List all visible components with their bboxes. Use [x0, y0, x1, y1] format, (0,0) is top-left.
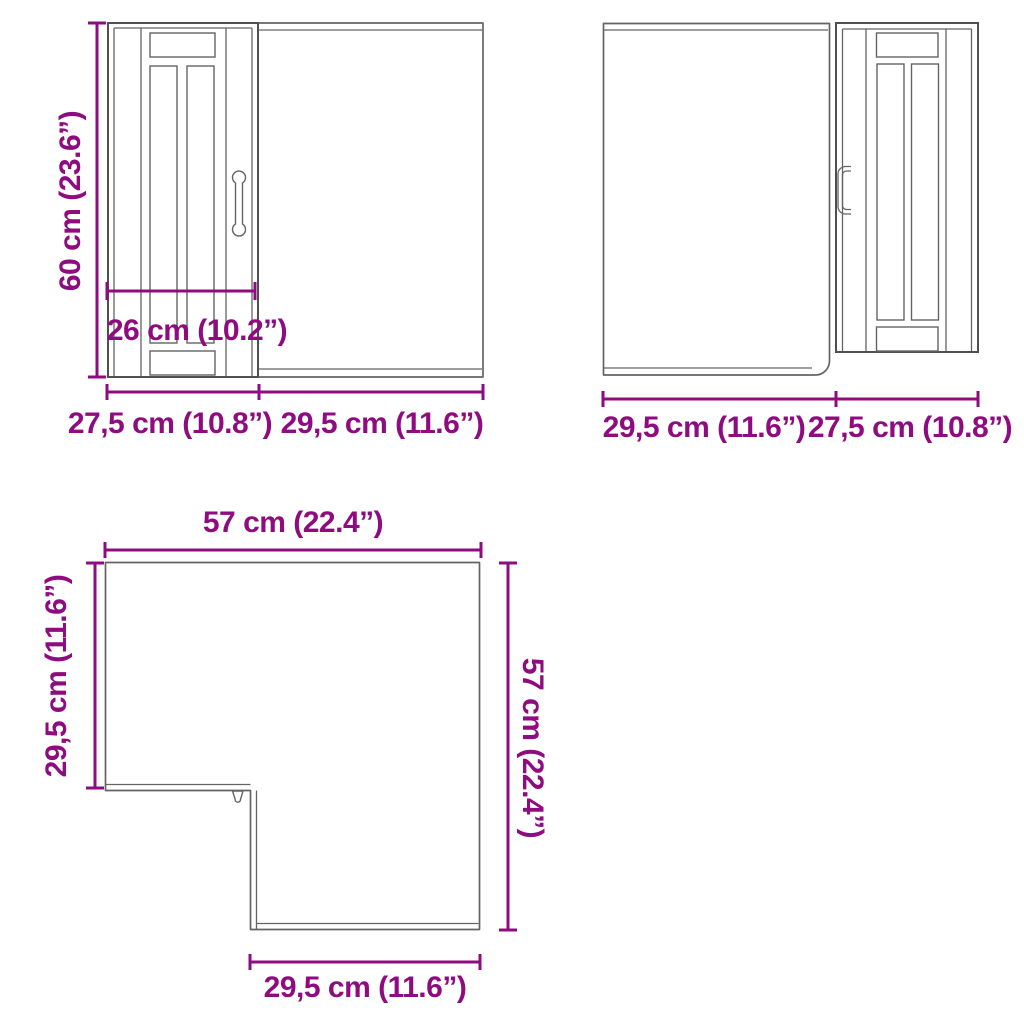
front-right-door-width-label: 27,5 cm (10.8”) — [808, 413, 1012, 443]
side-panel — [604, 24, 830, 376]
door-right-panel — [187, 66, 214, 343]
bottom-depth-dimension — [250, 954, 480, 970]
side-panel-outline — [258, 23, 483, 377]
top-width-dimension — [105, 542, 481, 558]
top-view-left-depth-label: 29,5 cm (11.6”) — [42, 575, 72, 778]
door-handle-icon — [233, 791, 244, 802]
door-left-panel — [877, 64, 904, 320]
corner-outline — [106, 563, 480, 930]
side-panel — [258, 23, 483, 377]
front-left-side-width-label: 29,5 cm (11.6”) — [281, 409, 484, 439]
door-right-panel — [912, 64, 939, 320]
door-inner-width-label: 26 cm (10.2”) — [107, 316, 287, 346]
right-width-dimension — [499, 563, 517, 930]
door-outline — [836, 23, 978, 352]
left-depth-dimension — [86, 563, 104, 788]
top-view-right-width-label: 57 cm (22.4”) — [517, 658, 547, 838]
dimension-diagram: 60 cm (23.6”) 26 cm (10.2”) 27,5 cm (10.… — [0, 0, 1024, 1024]
front-left-door-width-label: 27,5 cm (10.8”) — [68, 409, 272, 439]
door-bottom-panel — [877, 327, 939, 351]
door-left-panel — [150, 66, 177, 343]
diagram-linework — [0, 0, 1024, 1024]
top-view-width-label: 57 cm (22.4”) — [203, 508, 383, 538]
height-dimension — [88, 23, 106, 377]
top-view — [86, 542, 517, 970]
bottom-width-dimension — [107, 384, 483, 400]
door-bottom-panel — [150, 351, 215, 375]
corner-body — [106, 563, 480, 930]
bottom-width-dimension — [603, 391, 978, 407]
cabinet-door — [836, 23, 978, 352]
door-top-panel — [877, 33, 939, 57]
top-view-bottom-depth-label: 29,5 cm (11.6”) — [264, 973, 467, 1003]
door-top-panel — [150, 33, 215, 57]
front-right-side-width-label: 29,5 cm (11.6”) — [603, 413, 806, 443]
side-panel-outline — [604, 24, 830, 376]
front-right-view — [603, 23, 978, 407]
height-dimension-label: 60 cm (23.6”) — [56, 111, 86, 291]
